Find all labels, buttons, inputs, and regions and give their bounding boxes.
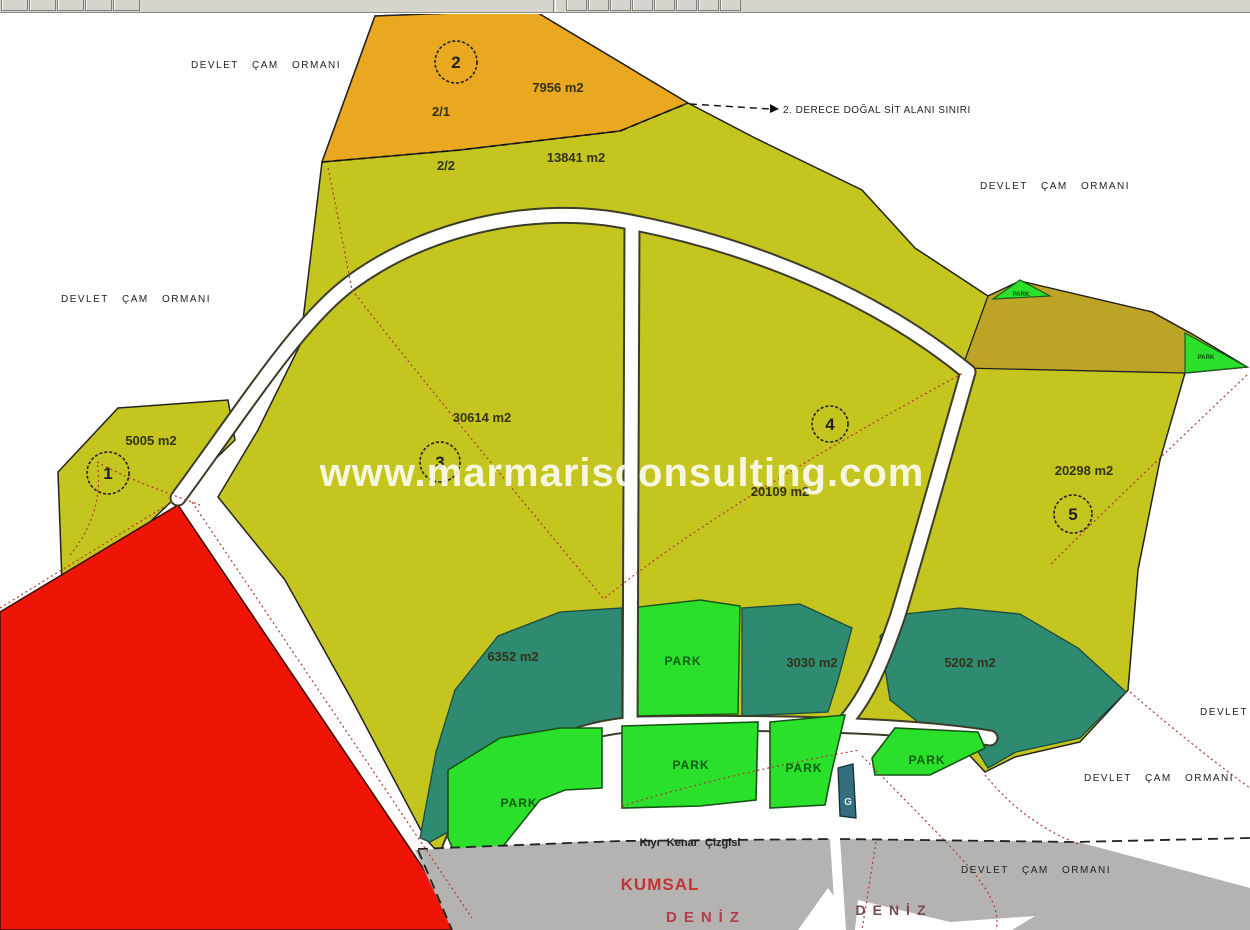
toolbar-button[interactable] xyxy=(720,0,741,11)
deniz-label-left: DENİZ xyxy=(666,909,746,926)
toolbar-button-group-left xyxy=(1,0,140,12)
toolbar-button[interactable] xyxy=(113,0,140,11)
forest-label-4: DEVLET ÇAM ORMANI xyxy=(1084,773,1234,784)
toolbar-button[interactable] xyxy=(654,0,675,11)
toolbar-button[interactable] xyxy=(676,0,697,11)
toolbar-button[interactable] xyxy=(29,0,56,11)
park-label-b4: PARK xyxy=(908,753,945,767)
parcel-5-number: 5 xyxy=(1068,505,1077,524)
zone-6352-label: 6352 m2 xyxy=(487,649,538,664)
zone-5202-label: 5202 m2 xyxy=(944,655,995,670)
parcel-4-number: 4 xyxy=(825,415,835,434)
forest-label-5: DEVLET ÇAM ORMANI xyxy=(961,865,1111,876)
parcel-2-sub-b-label: 2/2 xyxy=(437,158,455,173)
zoning-map: 2. DERECE DOĞAL SİT ALANI SINIRI 1 2 3 4… xyxy=(0,14,1250,930)
toolbar-button-group-right xyxy=(566,0,741,12)
park-label-small-1: PARK xyxy=(1013,292,1030,298)
park-label-small-2: PARK xyxy=(1198,355,1215,361)
parcel-2-number: 2 xyxy=(451,53,460,72)
forest-label-3: DEVLET ÇAM ORMANI xyxy=(980,181,1130,192)
forest-label-1: DEVLET ÇAM ORMANI xyxy=(191,60,341,71)
parcel-1-area-label: 5005 m2 xyxy=(125,433,176,448)
parcel-2-area-label: 7956 m2 xyxy=(532,80,583,95)
arrow-icon xyxy=(770,104,779,113)
g-lot-region xyxy=(838,764,856,818)
park-label-b2: PARK xyxy=(672,758,709,772)
toolbar-button[interactable] xyxy=(632,0,653,11)
parcel-1-number: 1 xyxy=(103,464,112,483)
park-label-b3: PARK xyxy=(785,761,822,775)
watermark: www.marmarisconsulting.com xyxy=(319,451,925,495)
toolbar-separator xyxy=(553,0,556,12)
coastline-label: Kıyı Kenar Çizgisi xyxy=(640,837,741,849)
toolbar-button[interactable] xyxy=(610,0,631,11)
park-label-middle: PARK xyxy=(664,654,701,668)
toolbar xyxy=(0,0,1250,13)
toolbar-button[interactable] xyxy=(1,0,28,11)
kumsal-label: KUMSAL xyxy=(621,875,700,894)
deniz-label-right: DENİZ xyxy=(856,902,933,918)
toolbar-button[interactable] xyxy=(698,0,719,11)
sit-boundary-label: 2. DERECE DOĞAL SİT ALANI SINIRI xyxy=(783,103,971,116)
g-lot-label: G xyxy=(844,797,852,808)
forest-label-2: DEVLET ÇAM ORMANI xyxy=(61,294,211,305)
toolbar-button[interactable] xyxy=(566,0,587,11)
parcel-2-sub-a-label: 2/1 xyxy=(432,104,450,119)
parcel-3-area-label: 30614 m2 xyxy=(453,410,512,425)
forest-label-partial: DEVLET xyxy=(1200,707,1248,718)
toolbar-button[interactable] xyxy=(588,0,609,11)
map-canvas: 2. DERECE DOĞAL SİT ALANI SINIRI 1 2 3 4… xyxy=(0,14,1250,930)
park-region-b4 xyxy=(872,728,985,775)
parcel-2-area-b-label: 13841 m2 xyxy=(547,150,606,165)
park-label-b1: PARK xyxy=(500,796,537,810)
parcel-5-area-label: 20298 m2 xyxy=(1055,463,1114,478)
toolbar-button[interactable] xyxy=(85,0,112,11)
toolbar-button[interactable] xyxy=(57,0,84,11)
zone-3030-label: 3030 m2 xyxy=(786,655,837,670)
park-region-small-2 xyxy=(1185,333,1247,373)
